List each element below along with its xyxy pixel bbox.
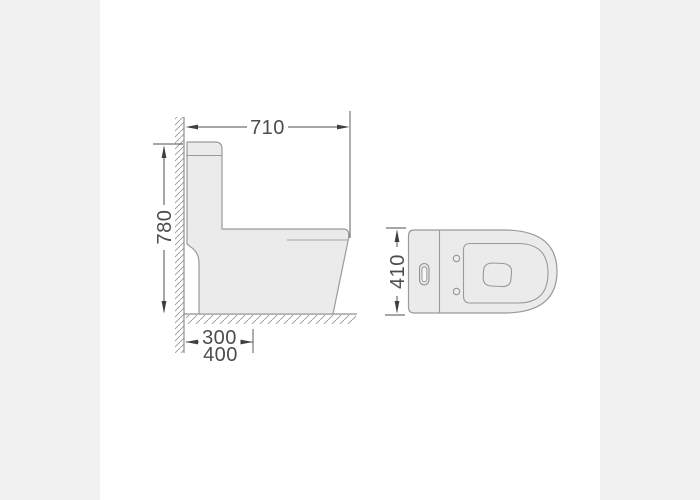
toilet-dimension-diagram: 710 780 300 400	[0, 0, 700, 500]
dim-label-width: 410	[387, 254, 409, 289]
arrowhead-down	[162, 301, 167, 314]
floor-hatching	[186, 315, 356, 324]
drawing-canvas: 710 780 300 400	[0, 0, 700, 500]
arrowhead-right	[337, 125, 350, 130]
dim-label-rough-in-alternate: 400	[203, 344, 238, 366]
seat-hinge-hole-top	[453, 255, 459, 261]
arrowhead-up	[162, 146, 167, 159]
wall-hatching	[175, 117, 184, 353]
toilet-top-outline	[409, 230, 558, 313]
arrowhead-right	[241, 340, 254, 345]
bowl-water-outline	[483, 263, 511, 287]
toilet-side-profile	[187, 142, 349, 314]
side-view: 710 780 300 400	[153, 111, 357, 366]
arrowhead-left	[186, 125, 199, 130]
dim-label-depth: 710	[250, 117, 285, 139]
dim-label-height: 780	[154, 210, 176, 245]
top-view: 410	[385, 228, 557, 315]
arrowhead-left	[186, 340, 199, 345]
arrowhead-down	[395, 301, 400, 314]
seat-hinge-hole-bottom	[453, 288, 459, 294]
flush-button-inner	[422, 267, 427, 282]
arrowhead-up	[395, 230, 400, 243]
